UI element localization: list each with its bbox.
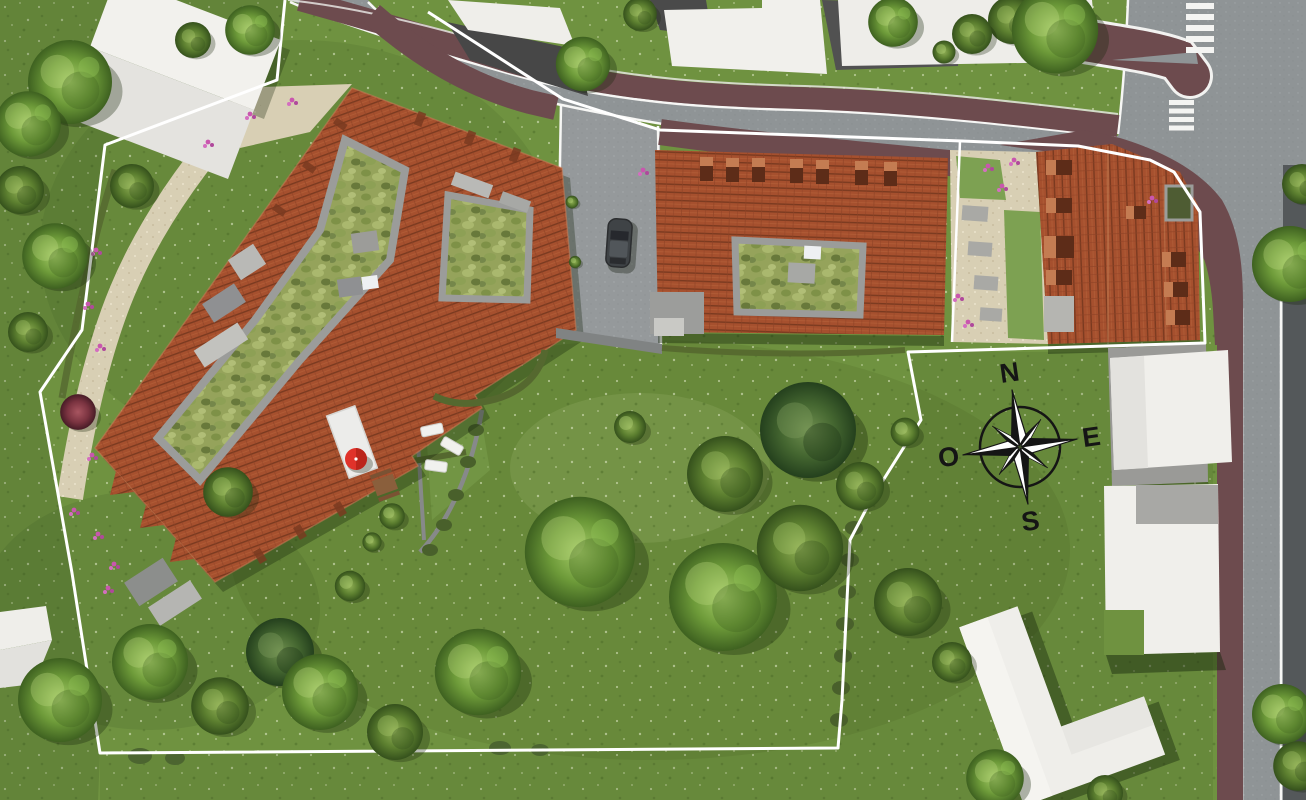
roof-deck: [1136, 485, 1218, 524]
roof-plane: [1110, 356, 1148, 470]
compass-label-west: O: [936, 441, 961, 474]
roof-dormers: [700, 157, 897, 186]
building-a-green-roof: [442, 195, 530, 300]
car-windshield: [610, 230, 629, 240]
lawn-notch: [1104, 610, 1144, 655]
neighbor-building: [664, 0, 827, 74]
roof-terrace: [1044, 296, 1074, 332]
site-plan: N E S O: [0, 0, 1306, 800]
car-roof: [609, 240, 628, 257]
entrance-slab: [654, 318, 684, 336]
parasol-pole: [354, 457, 357, 460]
compass-label-north: N: [998, 357, 1021, 389]
lawn-plot: [1004, 210, 1044, 340]
site-plan-canvas: N E S O: [0, 0, 1306, 800]
courtyard-garden-east: [950, 141, 1048, 344]
parked-car: [605, 218, 639, 274]
lawn-plot: [956, 156, 1006, 200]
car-rear-window: [610, 257, 626, 264]
building-b: [650, 150, 948, 346]
